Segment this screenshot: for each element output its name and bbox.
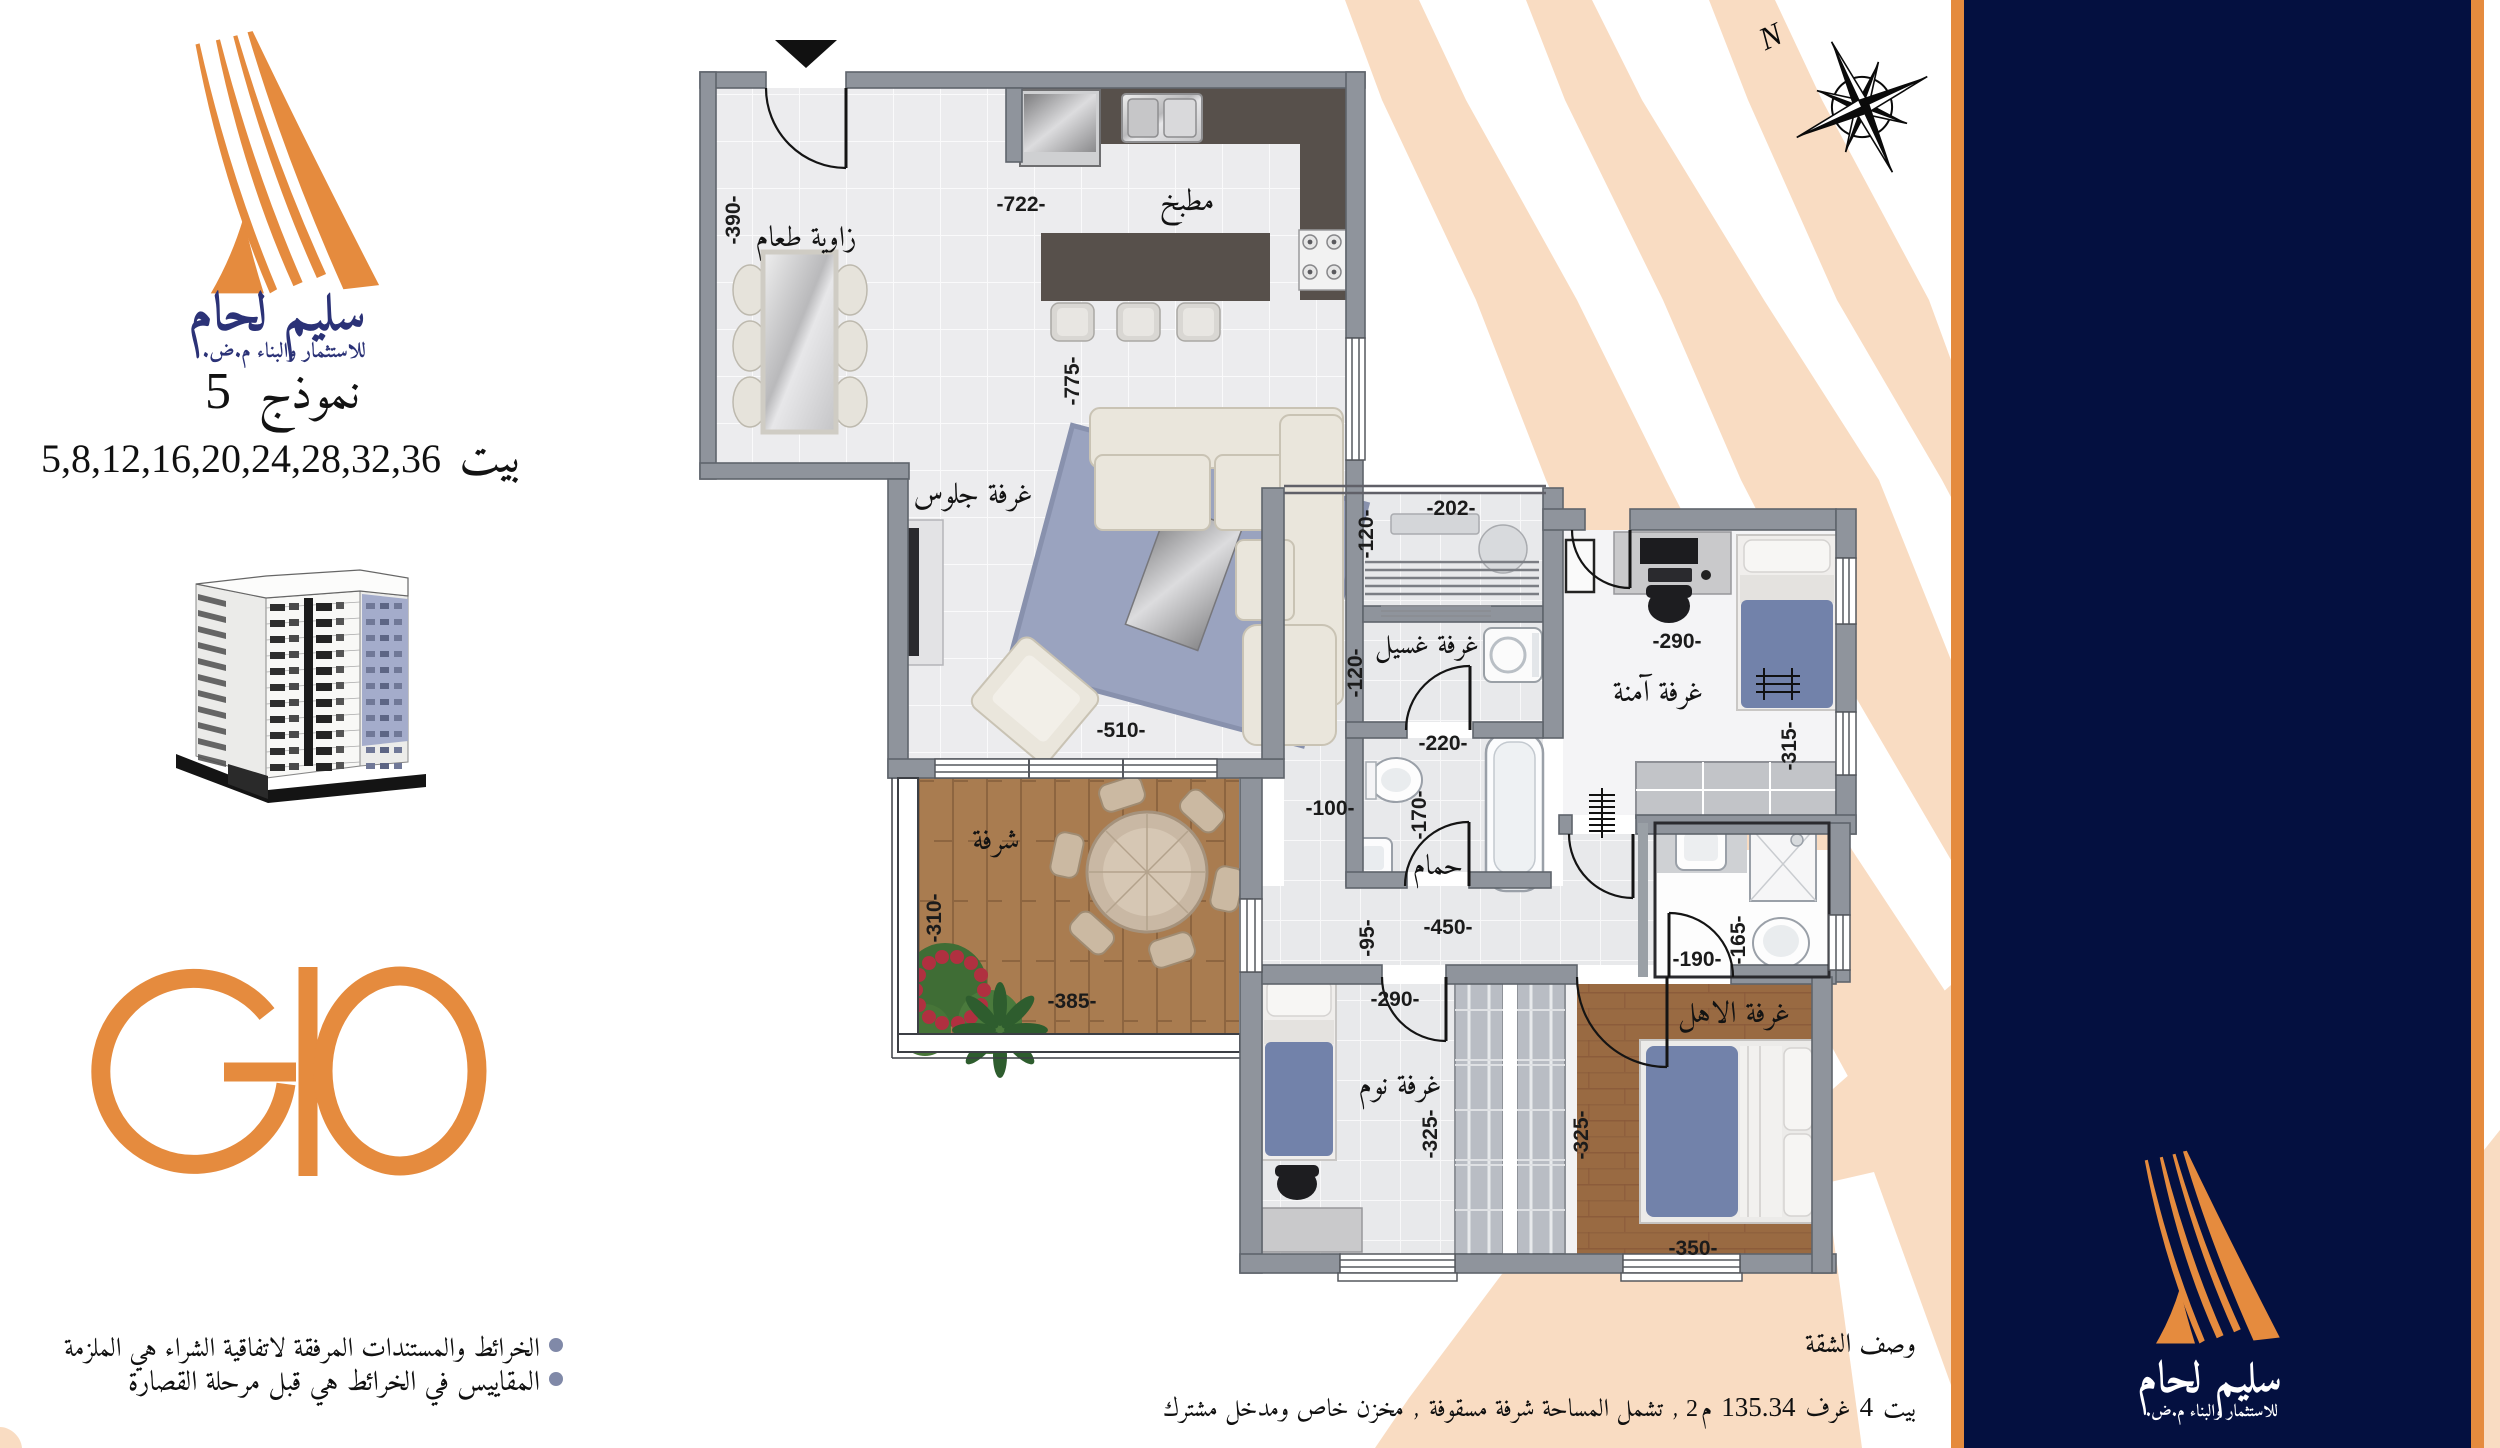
svg-text:-775-: -775- <box>1061 356 1084 405</box>
svg-text:-190-: -190- <box>1672 948 1721 971</box>
svg-text:5: 5 <box>205 363 231 420</box>
svg-text:-100-: -100- <box>1305 797 1354 820</box>
svg-text:2: 2 <box>1686 1396 1698 1422</box>
svg-text:-325-: -325- <box>1570 1110 1593 1159</box>
svg-text:-120-: -120- <box>1344 648 1367 697</box>
svg-text:5,8,12,16,20,24,28,32,36: 5,8,12,16,20,24,28,32,36 <box>41 436 441 481</box>
svg-text:-450-: -450- <box>1423 916 1472 939</box>
svg-text:-510-: -510- <box>1096 719 1145 742</box>
svg-text:-385-: -385- <box>1047 990 1096 1013</box>
svg-text:-95-: -95- <box>1356 919 1379 956</box>
svg-text:-220-: -220- <box>1418 732 1467 755</box>
svg-text:-390-: -390- <box>722 195 745 244</box>
svg-text:-325-: -325- <box>1419 1109 1442 1158</box>
svg-text:-310-: -310- <box>923 893 946 942</box>
svg-text:-120-: -120- <box>1355 509 1378 558</box>
svg-text:-722-: -722- <box>996 193 1045 216</box>
svg-text:-290-: -290- <box>1370 988 1419 1011</box>
svg-text:-350-: -350- <box>1668 1237 1717 1260</box>
svg-text:-315-: -315- <box>1778 721 1801 770</box>
svg-text:4: 4 <box>1860 1392 1874 1422</box>
svg-text:-290-: -290- <box>1652 630 1701 653</box>
svg-text:-202-: -202- <box>1426 497 1475 520</box>
svg-text:135.34: 135.34 <box>1721 1392 1796 1422</box>
svg-text:-170-: -170- <box>1408 790 1431 839</box>
svg-text:-165-: -165- <box>1727 915 1750 964</box>
